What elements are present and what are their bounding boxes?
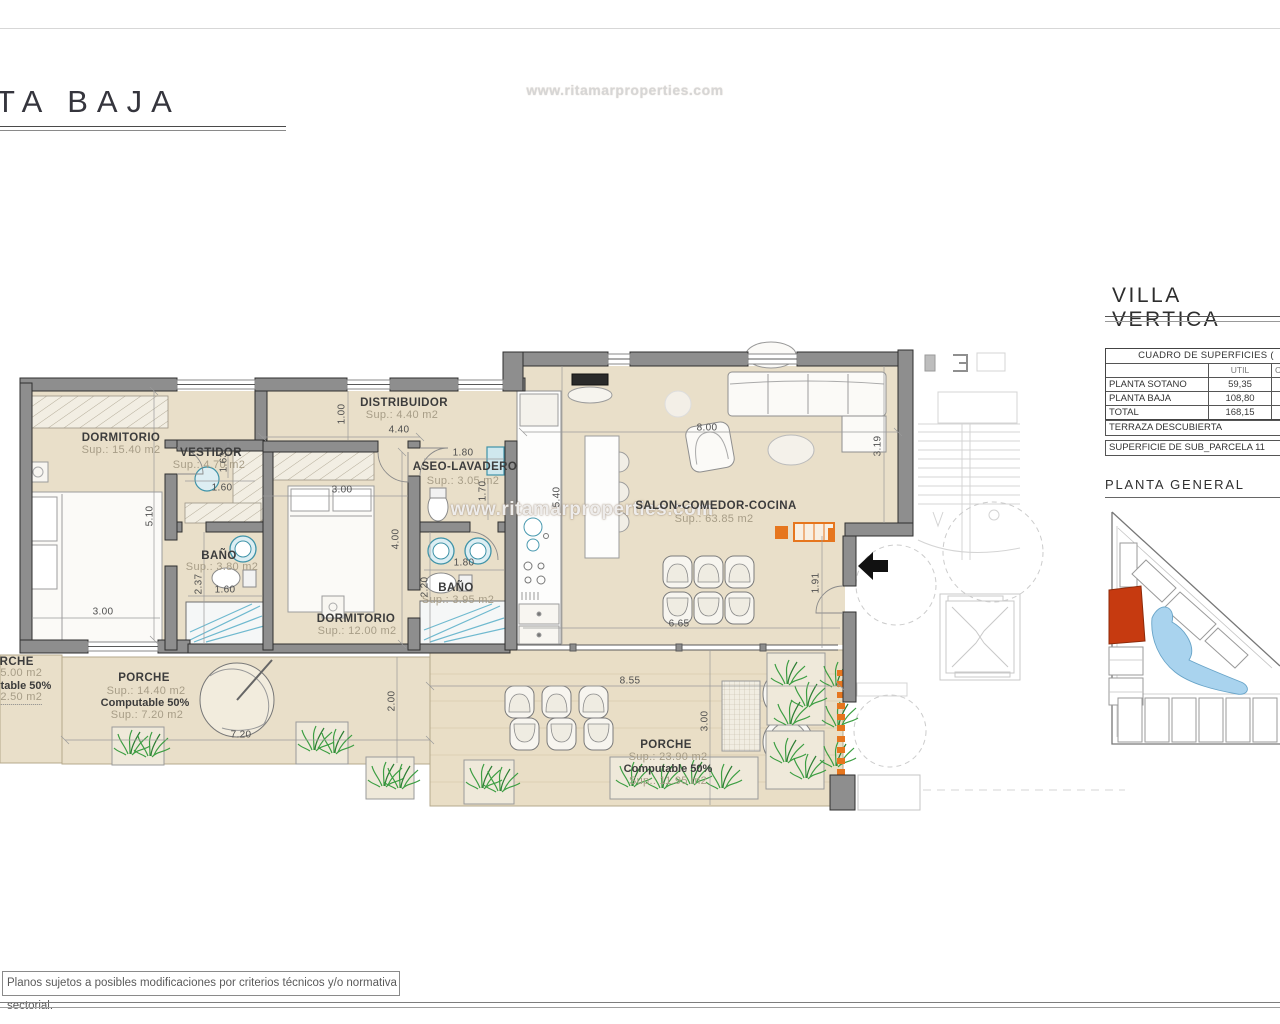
room-sup-banio2: Sup.: 3.95 m2 [422,594,494,606]
footer-note: Planos sujetos a posibles modificaciones… [2,971,400,996]
room-label-porche-center: PORCHE [118,672,170,684]
dim-dorm2-w: 3.00 [332,485,353,496]
page-title: TA BAJA [0,84,181,120]
project-title: VILLA VERTICA [1112,284,1280,332]
room-sup2-porche-bottom: Sup.: 11.95 m2 [629,775,707,787]
dim-porche-bottom-h: 3.00 [700,711,711,732]
room-sup-porche-bottom: Sup.: 23.90 m2 [629,751,708,763]
dim-aseo-w: 1.80 [453,448,474,459]
room-sup2-porche-center: Sup.: 7.20 m2 [111,709,183,721]
sheet-frame-top [0,28,1280,29]
room-sup-porche-center: Sup.: 14.40 m2 [107,685,186,697]
dim-porche-center-w: 7.20 [231,730,252,741]
table-row: PLANTA BAJA 108,80 [1106,391,1280,405]
parcela-box: SUPERFICIE DE SUB_PARCELA 11 [1105,440,1280,456]
room-sup-porche-left: Sup.: 5.00 m2 [0,667,42,679]
terraza-box: TERRAZA DESCUBIERTA [1105,420,1280,436]
dim-distrib-w: 4.40 [389,425,410,436]
site-plan [1109,512,1280,744]
site-plan-underline [1105,497,1280,498]
dim-banio2-w: 1.80 [454,558,475,569]
dim-dorm2-h: 4.00 [391,529,402,550]
room-label-banio2: BAÑO [438,582,473,594]
dim-aseo-h: 1.70 [478,481,489,502]
table-row: TOTAL 168,15 [1106,405,1280,419]
sheet-frame-bottom-2 [0,1007,1280,1008]
plan-sheet: TA BAJA www.ritamarproperties.com www.ri… [0,0,1280,1024]
watermark: www.ritamarproperties.com [526,82,723,98]
room-sup-distribuidor: Sup.: 4.40 m2 [366,409,438,421]
dim-salon-h: 3.19 [873,436,884,457]
dim-distrib-h: 1.00 [337,404,348,425]
sheet-frame-bottom [0,1002,1280,1003]
room-sup-dormitorio1: Sup.: 15.40 m2 [82,444,161,456]
room-computable-porche-bottom: Computable 50% [624,763,713,775]
dim-banio1-w: 1.60 [215,585,236,596]
col-util: UTIL [1209,364,1272,377]
room-label-dormitorio1: DORMITORIO [82,432,161,444]
surfaces-table: CUADRO DE SUPERFICIES ( UTIL C PLANTA SO… [1105,348,1280,420]
highlighted-villa [1109,586,1145,644]
room-label-salon: SALON-COMEDOR-COCINA [635,500,796,512]
room-label-distribuidor: DISTRIBUIDOR [360,397,448,409]
dim-porche-bottom-w: 8.55 [620,676,641,687]
surfaces-table-title: CUADRO DE SUPERFICIES ( [1106,349,1280,363]
room-sup-vestidor: Sup.: 4.70 m2 [173,459,245,471]
room-label-dormitorio2: DORMITORIO [317,613,396,625]
room-sup-dormitorio2: Sup.: 12.00 m2 [318,625,397,637]
skylight [940,594,1020,680]
room-label-vestidor: VESTIDOR [180,447,242,459]
room-sup-banio1: Sup.: 3.80 m2 [186,561,258,573]
dim-salon-w: 8.00 [697,423,718,434]
site-plan-title: PLANTA GENERAL [1105,477,1245,492]
dim-vestidor-w: 1.60 [212,483,233,494]
room-sup2-porche-left: Sup.: 2.50 m2 [0,691,42,705]
project-title-underline [1105,316,1280,322]
dim-cocina-h: 5.40 [552,487,563,508]
dim-dorm1-h: 5.10 [145,506,156,527]
dim-entrada-h: 1.91 [811,573,822,594]
room-sup-salon: Sup.: 63.85 m2 [675,513,754,525]
dim-salon-bottom: 6.65 [669,619,690,630]
room-label-aseo: ASEO-LAVADERO [413,461,517,473]
dim-vestidor-h: 1.63 [219,452,230,473]
dim-banio1-h: 2.37 [194,574,205,595]
room-computable-porche-center: Computable 50% [101,697,190,709]
col-right: C [1272,364,1280,377]
dim-porche-center-h: 2.00 [387,691,398,712]
dim-dorm1-w: 3.00 [93,607,114,618]
title-underline [0,126,286,131]
table-row: PLANTA SOTANO 59,35 [1106,377,1280,391]
room-label-porche-bottom: PORCHE [640,739,692,751]
dim-banio2-h: 2.20 [420,577,431,598]
